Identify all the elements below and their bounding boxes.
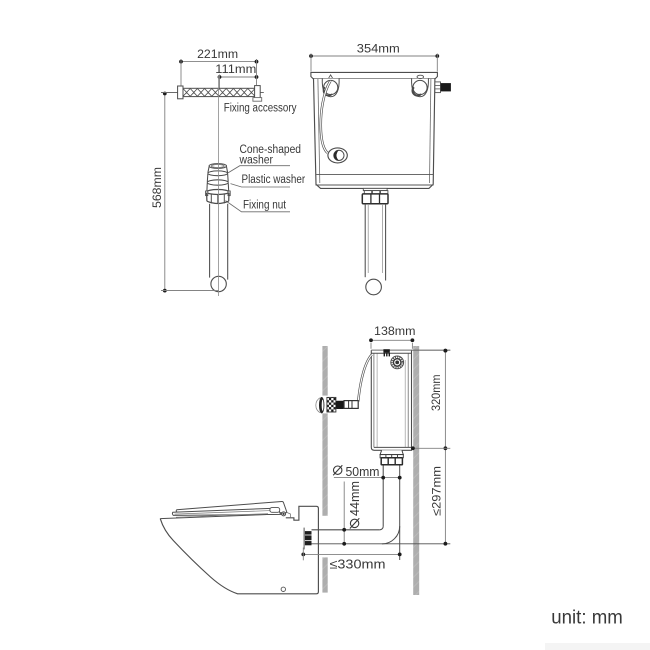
svg-text:washer: washer bbox=[239, 154, 274, 166]
svg-text:221mm: 221mm bbox=[197, 47, 238, 61]
svg-text:≤330mm: ≤330mm bbox=[330, 556, 386, 571]
svg-text:138mm: 138mm bbox=[374, 324, 416, 338]
svg-text:Fixing nut: Fixing nut bbox=[243, 200, 287, 212]
svg-text:568mm: 568mm bbox=[150, 167, 164, 208]
svg-text:Plastic washer: Plastic washer bbox=[242, 174, 306, 186]
svg-text:111mm: 111mm bbox=[215, 62, 256, 76]
svg-text:≤297mm: ≤297mm bbox=[429, 466, 443, 516]
svg-text:44mm: 44mm bbox=[347, 481, 362, 516]
svg-text:354mm: 354mm bbox=[357, 42, 400, 56]
svg-text:Fixing accessory: Fixing accessory bbox=[224, 103, 297, 115]
svg-text:unit: mm: unit: mm bbox=[551, 607, 623, 628]
svg-text:50mm: 50mm bbox=[346, 464, 380, 479]
svg-text:320mm: 320mm bbox=[429, 374, 443, 411]
